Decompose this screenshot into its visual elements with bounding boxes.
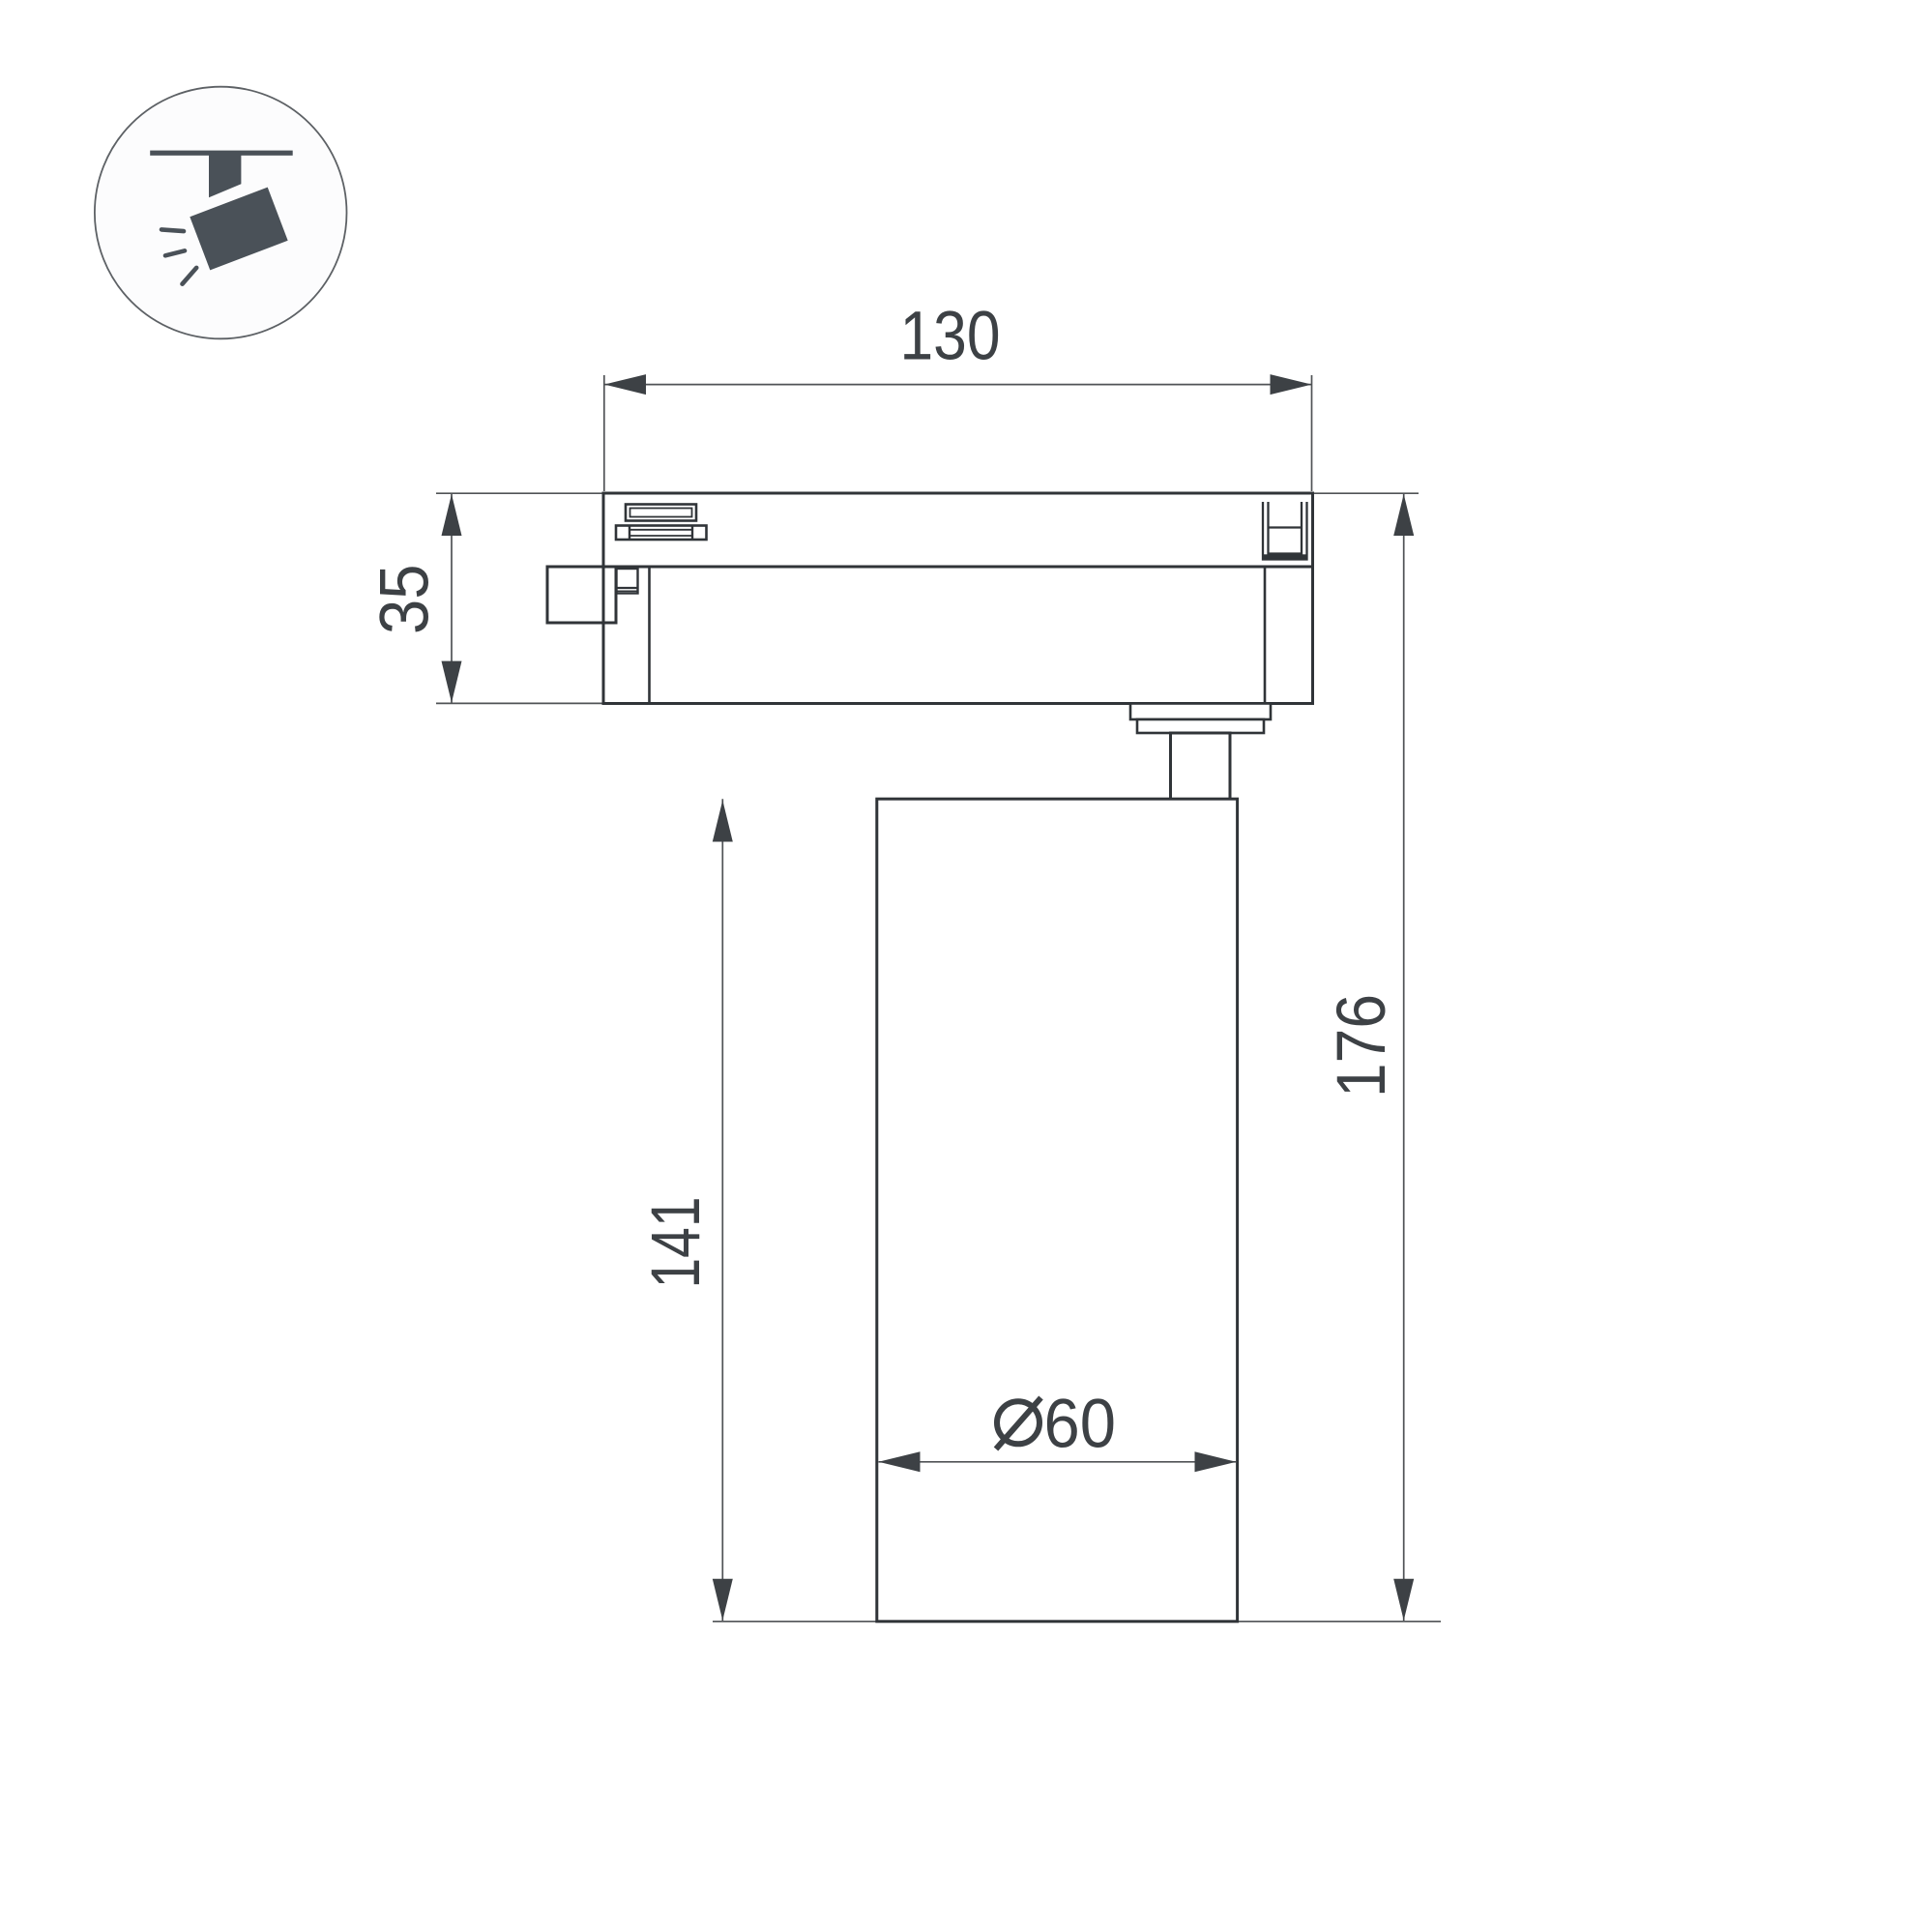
svg-text:141: 141 (638, 1197, 715, 1289)
svg-text:60: 60 (1044, 1386, 1117, 1462)
svg-text:35: 35 (367, 565, 444, 635)
svg-text:176: 176 (1324, 994, 1400, 1098)
svg-text:130: 130 (900, 299, 1001, 375)
